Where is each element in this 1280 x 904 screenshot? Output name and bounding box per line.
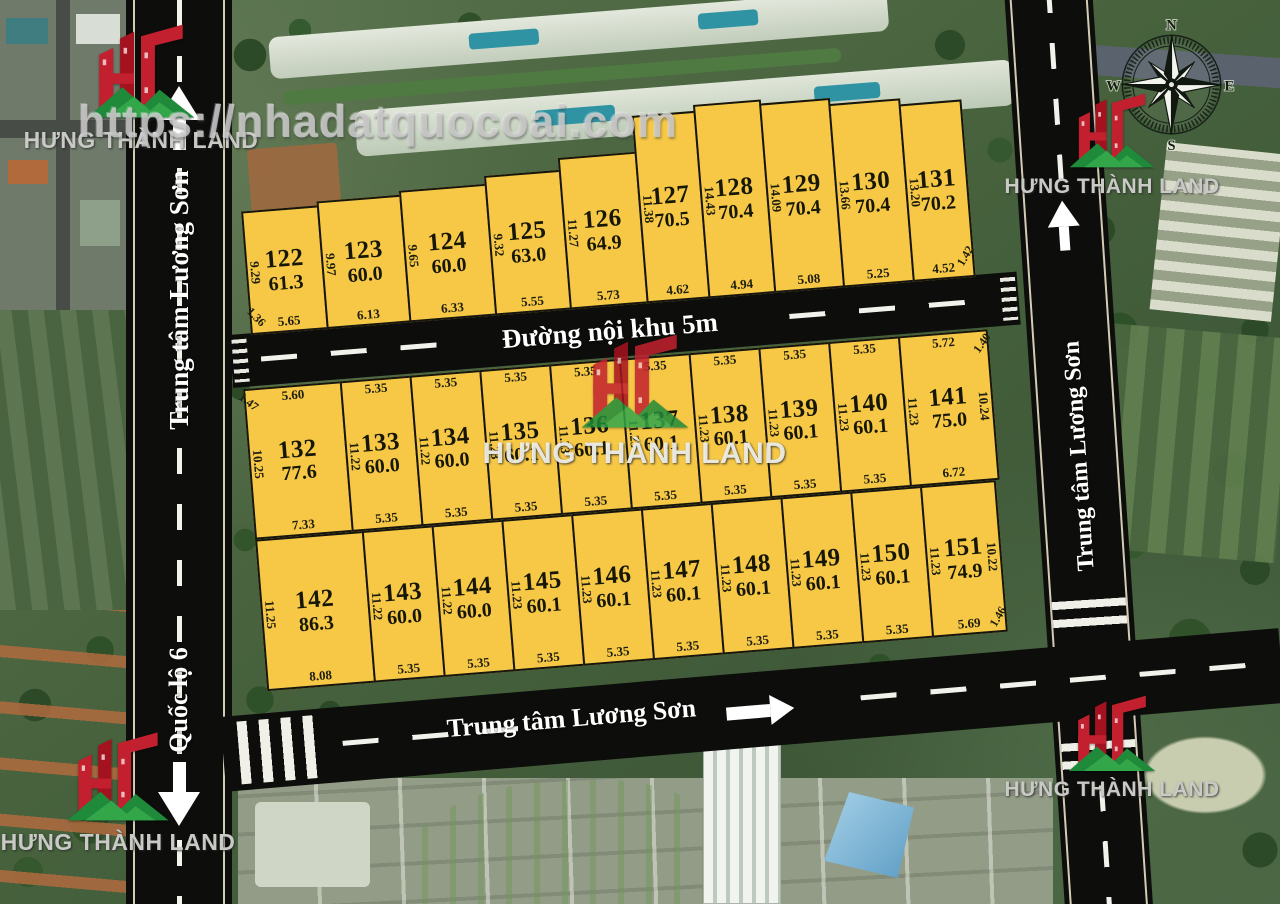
lane-divider [789, 298, 989, 319]
lane-divider [261, 342, 441, 361]
dim-bottom: 5.08 [775, 269, 842, 290]
dim-bottom: 5.35 [793, 624, 862, 645]
road-hatch-marks [1000, 277, 1018, 321]
plot-label: 13070.4 [850, 168, 893, 218]
plot-number: 124 [427, 228, 468, 257]
dim-bottom: 5.35 [863, 619, 932, 640]
plot-area: 60.0 [345, 263, 386, 287]
plot-area: 60.0 [454, 599, 495, 623]
zebra-crossing [236, 715, 323, 785]
dim-side: 11.23 [834, 402, 852, 432]
road-label-right: Trung tâm Lương Sơn [1050, 285, 1108, 627]
dim-bottom: 5.35 [631, 485, 700, 506]
plot-area: 74.9 [945, 560, 986, 584]
plot-label: 14175.0 [927, 383, 970, 433]
dim-side: 11.23 [856, 552, 874, 582]
dim-side: 11.38 [639, 194, 657, 224]
dim-side: 11.23 [903, 396, 921, 426]
plot-label: 12970.4 [781, 170, 824, 220]
dim-side: 11.23 [507, 580, 525, 610]
plot-label: 12261.3 [264, 245, 307, 295]
plot-cell: 15174.95.6911.231.4610.22 [920, 480, 1009, 638]
plot-area: 86.3 [296, 612, 337, 636]
dim-side: 11.25 [261, 600, 279, 630]
dim-side: 11.22 [345, 441, 363, 471]
plot-label: 15174.9 [943, 534, 986, 584]
dim-bottom: 5.25 [843, 263, 913, 284]
plot-cell: 14286.38.0811.25 [255, 531, 376, 691]
dim-side: 9.65 [404, 244, 422, 268]
scenery-building [8, 160, 48, 184]
plot-area: 63.0 [508, 244, 549, 268]
plot-cell: 12664.95.7311.27 [557, 152, 648, 310]
dim-side: 10.25 [249, 448, 267, 478]
dim-bottom: 4.94 [709, 274, 774, 295]
dim-side: 11.22 [437, 586, 455, 616]
dim-side: 11.23 [647, 569, 665, 599]
dim-bottom: 5.35 [584, 641, 653, 662]
dim-bottom: 6.33 [410, 297, 495, 320]
plot-cell: 14175.05.726.7211.231.4010.24 [898, 329, 1000, 487]
plot-label: 15060.1 [871, 540, 914, 590]
plot-label: 13360.0 [360, 429, 403, 479]
scenery-building [80, 200, 120, 246]
dim-top: 5.35 [830, 338, 899, 359]
plot-number: 128 [714, 174, 755, 203]
plot-number: 150 [871, 540, 912, 569]
plot-label: 12563.0 [506, 218, 549, 268]
dim-side: 11.22 [367, 591, 385, 621]
plot-area: 60.1 [850, 416, 891, 440]
plot-label: 12770.5 [650, 182, 693, 232]
plot-area: 70.4 [716, 200, 757, 224]
plot-label: 12460.0 [427, 228, 470, 278]
plot-area: 70.2 [918, 192, 959, 216]
scenery-apartments-left [0, 310, 126, 610]
plot-label: 13460.0 [430, 423, 473, 473]
dim-bottom: 5.35 [840, 468, 909, 489]
dim-bottom: 5.35 [701, 479, 770, 500]
plot-area: 60.1 [803, 571, 844, 595]
plot-area: 60.1 [873, 566, 914, 590]
plot-number: 145 [522, 568, 563, 597]
compass-letter-n: N [1166, 18, 1177, 34]
plot-number: 130 [850, 168, 891, 197]
dim-side: 9.29 [246, 261, 264, 285]
plot-label: 13277.6 [277, 435, 320, 485]
dim-side: 11.23 [786, 558, 804, 588]
plot-number: 147 [661, 556, 702, 585]
plot-number: 143 [382, 579, 423, 608]
plot-label: 12664.9 [582, 205, 625, 255]
plot-area: 60.0 [429, 254, 470, 278]
dim-bottom: 5.55 [495, 291, 569, 313]
plot-label: 12360.0 [343, 237, 386, 287]
plot-area: 60.1 [524, 594, 565, 618]
plot-cell: 13277.65.607.3310.251.47 [243, 381, 353, 539]
dim-bottom: 5.35 [561, 491, 630, 512]
compass-letter-e: E [1225, 78, 1235, 94]
dim-side: 13.20 [906, 177, 924, 207]
plot-cell: 12360.06.139.97 [317, 195, 412, 329]
plot-label: 14860.1 [731, 551, 774, 601]
plot-area: 60.1 [663, 583, 704, 607]
plot-cell: 12261.35.659.291.36 [241, 205, 329, 335]
dim-side: 11.27 [563, 218, 581, 248]
plot-label: 12870.4 [714, 174, 757, 224]
lane-divider [1098, 785, 1112, 904]
dim-side-right: 10.22 [983, 541, 1001, 571]
brand-logo-text: HƯNG THÀNH LAND [1, 829, 236, 856]
plot-area: 61.3 [266, 271, 307, 295]
brand-logo-icon [1065, 692, 1159, 778]
dim-side: 11.23 [926, 546, 944, 576]
dim-side: 11.22 [415, 435, 433, 465]
plot-area: 75.0 [929, 409, 970, 433]
road-hatch-marks [231, 339, 249, 383]
dim-side: 9.32 [489, 233, 507, 257]
watermark-url: https://nhadatquocoai.com [78, 96, 678, 148]
dim-side: 11.23 [577, 574, 595, 604]
plot-label: 14660.1 [591, 562, 634, 612]
brand-logo-text: HƯNG THÀNH LAND [1004, 778, 1219, 802]
brand-logo: HƯNG THÀNH LAND [1012, 692, 1212, 802]
plot-area: 77.6 [279, 462, 320, 486]
brand-logo: HƯNG THÀNH LAND [8, 728, 228, 856]
road-label-bottom: Trung tâm Lương Sơn [421, 691, 722, 746]
dim-bottom: 5.35 [374, 658, 443, 679]
dim-bottom: 5.35 [514, 647, 583, 668]
plot-number: 125 [506, 218, 547, 247]
plot-label: 14760.1 [661, 556, 704, 606]
plot-cell: 12563.05.559.32 [484, 170, 572, 316]
dim-bottom: 6.13 [327, 303, 409, 325]
brand-logo: HƯNG THÀNH LAND [492, 330, 777, 471]
plot-number: 151 [943, 534, 984, 563]
plot-area: 60.1 [594, 588, 635, 612]
plot-number: 123 [343, 237, 384, 266]
plot-number: 149 [801, 545, 842, 574]
dim-top: 5.35 [411, 372, 480, 393]
dim-bottom: 5.35 [491, 496, 560, 517]
brand-logo-icon [1066, 90, 1158, 175]
plot-area: 70.4 [783, 197, 824, 221]
dim-side: 11.23 [716, 563, 734, 593]
dim-bottom: 5.35 [352, 507, 421, 528]
plot-number: 144 [452, 573, 493, 602]
dim-bottom: 5.35 [422, 502, 491, 523]
brand-logo-icon [63, 728, 173, 829]
dim-side-right: 10.24 [975, 390, 993, 420]
dim-bottom: 5.35 [653, 636, 722, 657]
plot-number: 122 [264, 245, 305, 274]
map-canvas: Trung tâm Lương Sơn Quốc lộ 6 Trung tâm … [0, 0, 1280, 904]
plot-label: 14286.3 [294, 586, 337, 636]
plot-label: 14460.0 [452, 573, 495, 623]
right-arrow-icon [725, 693, 795, 729]
plot-number: 126 [582, 205, 623, 234]
dim-bottom: 5.35 [771, 474, 840, 495]
plot-area: 70.4 [852, 194, 893, 218]
plot-area: 60.1 [733, 577, 774, 601]
scenery-building [255, 802, 370, 887]
brand-logo-text: HƯNG THÀNH LAND [1004, 175, 1219, 199]
plot-area: 70.5 [652, 208, 693, 232]
plot-number: 148 [731, 551, 772, 580]
zebra-crossing [1052, 597, 1128, 636]
dim-bottom: 5.35 [444, 652, 513, 673]
plot-area: 60.0 [432, 449, 473, 473]
plot-area: 64.9 [584, 232, 625, 256]
plot-number: 129 [781, 170, 822, 199]
brand-logo-icon [577, 330, 693, 437]
plot-area: 60.0 [362, 455, 403, 479]
plot-cell: 12460.06.339.65 [399, 184, 497, 323]
plot-number: 146 [591, 562, 632, 591]
plot-number: 142 [294, 586, 335, 615]
plot-label: 14360.0 [382, 579, 425, 629]
dim-bottom: 5.35 [723, 630, 792, 651]
road-label-left-upper: Trung tâm Lương Sơn [159, 140, 199, 460]
plot-cell: 13170.24.5213.201.42 [899, 99, 976, 281]
plot-label: 14060.1 [848, 389, 891, 439]
plot-label: 14960.1 [801, 545, 844, 595]
plot-label: 14560.1 [522, 568, 565, 618]
dim-side: 14.09 [767, 182, 785, 212]
dim-side: 13.66 [835, 180, 853, 210]
brand-logo: HƯNG THÀNH LAND [1012, 90, 1212, 199]
up-arrow-icon [1046, 200, 1081, 252]
brand-logo-text: HƯNG THÀNH LAND [482, 437, 786, 471]
dim-bottom: 4.62 [647, 279, 708, 300]
dim-side: 9.97 [322, 253, 340, 277]
dim-side: 14.43 [701, 186, 719, 216]
dim-top: 5.35 [342, 378, 411, 399]
dim-bottom: 5.73 [570, 284, 646, 306]
plot-area: 60.0 [384, 605, 425, 629]
